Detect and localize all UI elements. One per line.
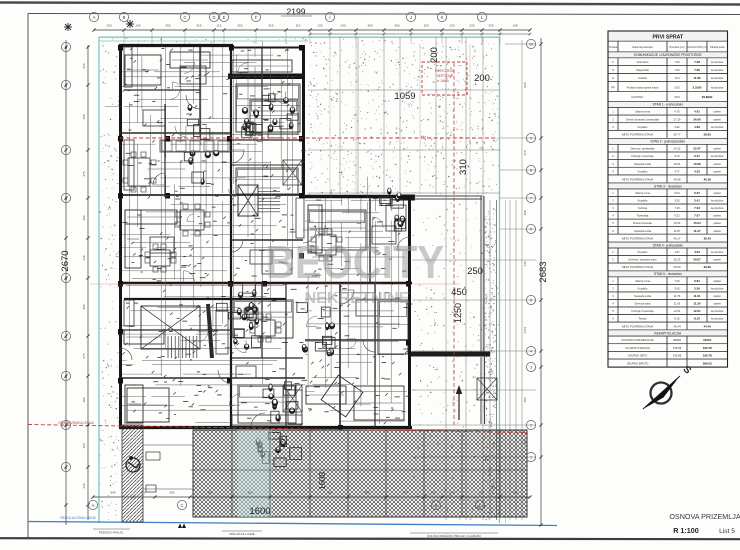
svg-text:2199: 2199 (287, 7, 306, 17)
svg-text:400: 400 (523, 210, 527, 215)
svg-text:parket: parket (714, 258, 721, 262)
svg-text:4.92: 4.92 (674, 125, 680, 129)
svg-text:29.90: 29.90 (674, 265, 681, 269)
svg-text:1: 1 (530, 456, 532, 460)
svg-text:R 1:100: R 1:100 (673, 526, 699, 535)
svg-text:Kupatilo: Kupatilo (638, 125, 648, 129)
svg-text:ker.pločice: ker.pločice (711, 317, 724, 321)
svg-text:5: 5 (530, 299, 532, 303)
svg-text:12.91: 12.91 (674, 309, 681, 313)
svg-text:4.53: 4.53 (694, 170, 700, 174)
svg-text:B: B (123, 15, 126, 20)
svg-text:4: 4 (530, 350, 532, 354)
svg-text:STAN 2 - jednoiposoban: STAN 2 - jednoiposoban (651, 140, 686, 144)
svg-text:4.87: 4.87 (674, 250, 680, 254)
svg-text:REGULACIONA LINIJA: REGULACIONA LINIJA (60, 516, 96, 520)
svg-text:ker.pločice: ker.pločice (711, 68, 724, 72)
svg-text:H: H (612, 76, 614, 80)
svg-text:29.96: 29.96 (704, 265, 712, 269)
svg-text:115: 115 (296, 24, 301, 28)
svg-text:9.47: 9.47 (694, 154, 700, 158)
svg-text:380: 380 (364, 491, 369, 495)
svg-text:140: 140 (135, 24, 140, 28)
svg-text:KOMUNIKACIJE I ZAJEDNIČKE PROS: KOMUNIKACIJE I ZAJEDNIČKE PROSTORIJE (634, 52, 702, 57)
svg-text:UKUPNO STANOVA: UKUPNO STANOVA (625, 346, 650, 350)
svg-text:2670: 2670 (60, 250, 71, 271)
svg-text:parket: parket (714, 294, 721, 298)
svg-text:parket: parket (714, 302, 721, 306)
svg-text:1250: 1250 (453, 303, 463, 323)
svg-text:D: D (212, 15, 215, 20)
svg-text:310: 310 (458, 159, 469, 175)
svg-text:Ulazna zona: Ulazna zona (635, 279, 650, 283)
svg-text:150: 150 (106, 24, 111, 28)
svg-text:Površina STA (m²): Površina STA (m²) (687, 46, 707, 49)
svg-text:ker.pločice: ker.pločice (711, 60, 724, 64)
svg-text:6.81: 6.81 (694, 279, 700, 283)
svg-text:Dnevna i spavaća soba: Dnevna i spavaća soba (629, 258, 657, 262)
svg-text:Ulazna zona: Ulazna zona (635, 191, 650, 195)
svg-text:2.3100: 2.3100 (693, 85, 702, 89)
svg-text:3.65: 3.65 (674, 287, 680, 291)
svg-text:400: 400 (82, 397, 86, 402)
svg-text:230: 230 (488, 24, 493, 28)
svg-text:380: 380 (207, 491, 212, 495)
svg-text:1059: 1059 (394, 91, 415, 102)
svg-text:26.06: 26.06 (693, 117, 701, 121)
svg-text:E: E (223, 15, 226, 20)
svg-text:parket: parket (714, 229, 721, 233)
svg-text:9: 9 (530, 137, 532, 141)
svg-text:44.40: 44.40 (704, 324, 712, 328)
svg-text:7.50: 7.50 (674, 60, 680, 64)
svg-text:Namena prostorije: Namena prostorije (632, 46, 653, 49)
svg-text:40.17: 40.17 (674, 236, 681, 240)
svg-text:UKUPNO BRUTO: UKUPNO BRUTO (627, 361, 649, 365)
svg-text:Kupatilo: Kupatilo (638, 250, 648, 254)
svg-text:J: J (410, 15, 412, 20)
svg-text:PRVI SPRAT: PRVI SPRAT (652, 34, 683, 40)
svg-text:25.23: 25.23 (674, 258, 681, 262)
svg-text:ker.pločice: ker.pločice (711, 199, 724, 203)
svg-text:11.76: 11.76 (674, 294, 681, 298)
svg-text:7.66: 7.66 (694, 68, 700, 72)
svg-text:11.01: 11.01 (693, 294, 700, 298)
svg-text:ker.pločice: ker.pločice (711, 250, 724, 254)
svg-text:2: 2 (530, 424, 532, 428)
svg-text:parket: parket (714, 214, 721, 218)
svg-text:36.77: 36.77 (674, 133, 681, 137)
svg-text:11.93: 11.93 (674, 302, 681, 306)
svg-text:2683: 2683 (538, 261, 549, 282)
svg-text:C: C (183, 15, 186, 20)
svg-text:7.90: 7.90 (674, 68, 680, 72)
svg-text:380: 380 (287, 491, 292, 495)
svg-text:7.03: 7.03 (694, 206, 700, 210)
svg-text:JAMA: JAMA (440, 79, 449, 83)
svg-text:STAN 1 - jednosoban: STAN 1 - jednosoban (653, 103, 683, 107)
svg-text:ker.pločice: ker.pločice (711, 287, 724, 291)
svg-text:950: 950 (82, 304, 86, 309)
svg-text:C: C (180, 503, 183, 508)
svg-text:S: S (612, 68, 614, 72)
svg-text:270: 270 (523, 150, 527, 155)
svg-text:STAN 3 - dvosoban: STAN 3 - dvosoban (654, 184, 682, 188)
svg-text:150: 150 (82, 114, 86, 119)
svg-text:10.38: 10.38 (693, 162, 701, 166)
svg-text:12.01: 12.01 (693, 309, 701, 313)
svg-text:3.00: 3.00 (674, 85, 680, 89)
svg-text:3.50: 3.50 (694, 287, 700, 291)
svg-text:190.78: 190.78 (703, 353, 712, 357)
svg-text:140: 140 (523, 261, 527, 266)
svg-text:11.80: 11.80 (693, 76, 700, 80)
svg-text:195.86: 195.86 (673, 346, 682, 350)
svg-text:12.3: 12.3 (674, 76, 680, 80)
svg-text:3.41: 3.41 (694, 199, 700, 203)
svg-text:46.38: 46.38 (704, 177, 712, 181)
svg-text:ker.pločice: ker.pločice (711, 85, 724, 89)
svg-text:5.04: 5.04 (674, 191, 680, 195)
svg-text:List 5: List 5 (719, 528, 735, 535)
svg-text:Obrada poda: Obrada poda (710, 46, 725, 49)
svg-text:3: 3 (530, 366, 532, 370)
svg-text:520: 520 (82, 63, 86, 68)
svg-text:415: 415 (268, 24, 273, 28)
svg-text:11.87: 11.87 (674, 229, 681, 233)
svg-text:3.55: 3.55 (674, 199, 680, 203)
svg-text:10.91: 10.91 (674, 162, 681, 166)
svg-text:parket: parket (714, 147, 721, 151)
svg-text:360: 360 (327, 491, 332, 495)
svg-text:39.43: 39.43 (704, 236, 712, 240)
svg-text:130: 130 (317, 24, 322, 28)
svg-text:7.25: 7.25 (674, 206, 680, 210)
svg-text:4.61: 4.61 (694, 110, 700, 114)
svg-text:A: A (92, 503, 95, 508)
svg-text:Kuhinja i trpezarija: Kuhinja i trpezarija (631, 309, 654, 313)
svg-text:Terasa: Terasa (638, 317, 647, 321)
svg-text:352: 352 (165, 24, 170, 28)
svg-text:8.10: 8.10 (694, 317, 700, 321)
svg-text:250: 250 (467, 266, 483, 277)
svg-text:7.07: 7.07 (694, 214, 700, 218)
svg-text:4.75: 4.75 (674, 110, 680, 114)
svg-text:PP: PP (611, 85, 615, 89)
svg-text:#####: ##### (673, 338, 681, 342)
svg-text:Dnevni boravak i predsoblje: Dnevni boravak i predsoblje (626, 117, 660, 121)
svg-text:Kuhinja i trpezarija: Kuhinja i trpezarija (631, 154, 654, 158)
svg-text:Kupatilo: Kupatilo (638, 170, 648, 174)
svg-text:150: 150 (430, 491, 435, 495)
svg-text:400: 400 (523, 397, 527, 402)
svg-text:SEPTIČKA: SEPTIČKA (437, 73, 454, 78)
svg-text:BEOCITY: BEOCITY (266, 236, 444, 288)
svg-text:Spavaća soba: Spavaća soba (634, 294, 652, 298)
svg-text:K: K (435, 503, 438, 508)
svg-text:UKUPNO KOMUNIKACIJA: UKUPNO KOMUNIKACIJA (621, 338, 654, 342)
svg-text:Dnevna i predsoblje: Dnevna i predsoblje (631, 147, 655, 151)
svg-text:PEŠAČKI PRILAZ: PEŠAČKI PRILAZ (99, 530, 124, 535)
svg-text:POSTOJEĆA: POSTOJEĆA (435, 68, 455, 73)
svg-text:400: 400 (82, 215, 86, 220)
svg-text:230: 230 (478, 491, 483, 495)
svg-text:6.27: 6.27 (694, 191, 700, 195)
svg-text:OSNOVA PRIZEMLJA: OSNOVA PRIZEMLJA (669, 512, 740, 521)
svg-text:parket: parket (714, 279, 721, 283)
svg-text:27.29: 27.29 (674, 117, 681, 121)
svg-text:Oznaka: Oznaka (609, 46, 618, 49)
svg-text:parket: parket (714, 191, 721, 195)
svg-text:415: 415 (196, 24, 201, 28)
svg-text:362: 362 (237, 24, 242, 28)
svg-text:8.22: 8.22 (674, 214, 680, 218)
svg-text:150: 150 (423, 24, 428, 28)
svg-text:Kupatilo: Kupatilo (638, 199, 648, 203)
svg-text:115: 115 (217, 24, 222, 28)
svg-text:Ulazna zona: Ulazna zona (635, 110, 650, 114)
svg-text:150: 150 (523, 439, 527, 444)
svg-text:450: 450 (367, 24, 372, 28)
svg-text:360: 360 (402, 491, 407, 495)
svg-text:Spavaća soba: Spavaća soba (634, 229, 652, 233)
svg-text:4.53: 4.53 (694, 250, 700, 254)
svg-text:PRILAZ ZA LJUDE: PRILAZ ZA LJUDE (229, 532, 254, 536)
svg-text:NEKRETNINE: NEKRETNINE (305, 290, 410, 307)
svg-text:29.65: 29.65 (704, 133, 712, 137)
svg-text:940: 940 (110, 491, 115, 495)
svg-text:Spavaća soba: Spavaća soba (634, 162, 652, 166)
svg-text:275: 275 (82, 171, 86, 176)
svg-text:7.38: 7.38 (694, 60, 700, 64)
svg-text:150: 150 (82, 443, 86, 448)
svg-text:140: 140 (512, 24, 517, 28)
svg-text:520: 520 (523, 82, 527, 87)
svg-text:K: K (441, 15, 444, 20)
svg-text:KOLSKO PEŠAČKI PRILAZ U GARAŽU: KOLSKO PEŠAČKI PRILAZ U GARAŽU (427, 533, 481, 538)
svg-text:8.10: 8.10 (674, 317, 680, 321)
svg-text:11.29: 11.29 (693, 302, 700, 306)
svg-text:6: 6 (530, 228, 532, 232)
svg-text:4.69: 4.69 (694, 125, 700, 129)
svg-text:450: 450 (451, 287, 467, 298)
svg-text:STAN 4 - jednosoban: STAN 4 - jednosoban (653, 243, 683, 247)
svg-text:ker.pločice: ker.pločice (711, 309, 724, 313)
svg-text:Kupatilo: Kupatilo (638, 287, 648, 291)
svg-text:Prolazni plato ispred stana: Prolazni plato ispred stana (627, 85, 659, 89)
svg-text:9.70: 9.70 (674, 154, 680, 158)
svg-text:49.58: 49.58 (674, 177, 681, 181)
svg-text:11.07: 11.07 (693, 229, 700, 233)
svg-text:15.04: 15.04 (693, 221, 701, 225)
svg-text:A: A (93, 15, 96, 20)
svg-text:8: 8 (530, 169, 532, 173)
svg-text:130: 130 (449, 24, 454, 28)
svg-text:140: 140 (512, 491, 517, 495)
svg-text:Dnevni boravak: Dnevni boravak (633, 221, 652, 225)
svg-text:30.6: 30.6 (674, 95, 680, 99)
svg-text:#####: ##### (703, 338, 711, 342)
svg-text:450: 450 (394, 24, 399, 28)
svg-text:360: 360 (247, 491, 252, 495)
svg-text:Trpezarija: Trpezarija (637, 214, 649, 218)
svg-text:Kuhinja: Kuhinja (638, 206, 647, 210)
svg-text:7: 7 (530, 197, 532, 201)
svg-text:Dnevna soba: Dnevna soba (635, 302, 651, 306)
svg-text:V: V (612, 60, 614, 64)
svg-text:4.77: 4.77 (674, 170, 680, 174)
svg-text:ker.pločice: ker.pločice (711, 125, 724, 129)
svg-text:ker.pločice: ker.pločice (711, 76, 724, 80)
svg-text:Stepenište: Stepenište (636, 68, 649, 72)
svg-text:F: F (255, 15, 258, 20)
svg-text:195.86: 195.86 (673, 353, 682, 357)
svg-text:1173: 1173 (523, 326, 527, 333)
svg-text:230: 230 (469, 24, 474, 28)
svg-text:ker.pločice: ker.pločice (711, 154, 724, 158)
svg-text:7.00: 7.00 (674, 279, 680, 283)
svg-text:REKAPITULACIJA: REKAPITULACIJA (654, 331, 682, 335)
svg-text:240: 240 (140, 491, 145, 495)
svg-text:1600: 1600 (249, 506, 270, 517)
svg-text:230: 230 (449, 491, 454, 495)
svg-text:parket: parket (714, 162, 721, 166)
svg-text:parket: parket (714, 117, 721, 121)
svg-text:240: 240 (82, 483, 86, 488)
svg-text:200: 200 (474, 73, 490, 84)
svg-text:parket: parket (714, 170, 721, 174)
svg-text:45.44: 45.44 (674, 324, 681, 328)
svg-text:390.03: 390.03 (703, 361, 712, 365)
svg-text:parket: parket (714, 221, 721, 225)
svg-text:22.47: 22.47 (693, 147, 701, 151)
svg-text:29.07: 29.07 (693, 258, 701, 262)
svg-text:I: I (329, 15, 330, 20)
svg-text:140: 140 (340, 24, 345, 28)
svg-text:275: 275 (82, 353, 86, 358)
svg-text:1600: 1600 (318, 472, 327, 490)
svg-text:UKUPNO:: UKUPNO: (631, 95, 643, 99)
svg-text:360: 360 (169, 491, 174, 495)
svg-text:29.8(09r: 29.8(09r (702, 95, 714, 99)
svg-text:24.22: 24.22 (674, 147, 681, 151)
svg-text:Vetrobran: Vetrobran (637, 60, 649, 64)
svg-text:140: 140 (82, 255, 86, 260)
svg-text:190.78: 190.78 (703, 346, 712, 350)
svg-text:10: 10 (529, 43, 533, 47)
svg-text:15.64: 15.64 (674, 221, 681, 225)
svg-text:Površina (m²): Površina (m²) (669, 46, 684, 49)
svg-text:UKUPNO NETO: UKUPNO NETO (628, 353, 648, 357)
svg-text:Hodnik: Hodnik (638, 76, 647, 80)
svg-text:200: 200 (429, 47, 440, 63)
svg-text:parket: parket (714, 110, 721, 114)
svg-text:ker.pločice: ker.pločice (711, 206, 724, 210)
svg-text:STAN 5 - dvosoban: STAN 5 - dvosoban (654, 272, 682, 276)
